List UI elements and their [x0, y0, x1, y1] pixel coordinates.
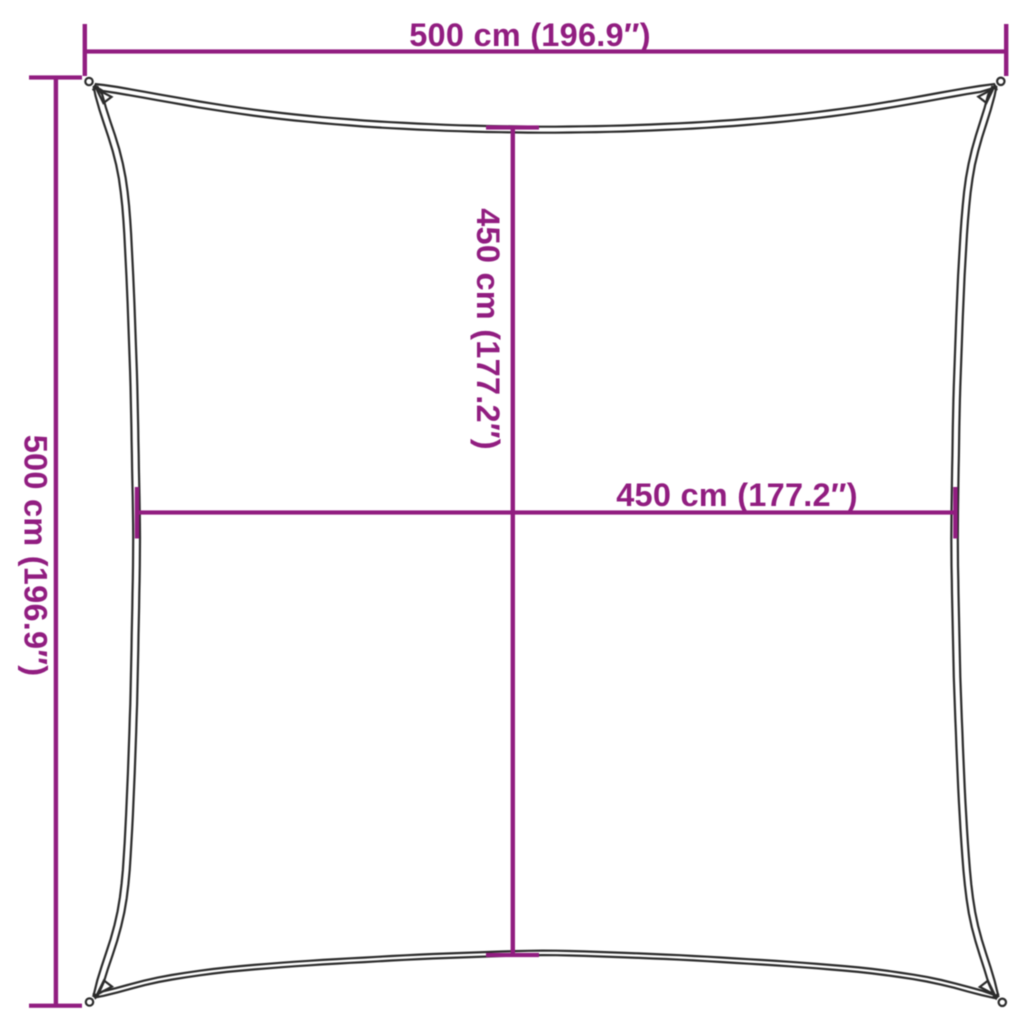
- svg-text:450 cm (177.2″): 450 cm (177.2″): [470, 208, 506, 450]
- svg-text:500 cm (196.9″): 500 cm (196.9″): [409, 17, 651, 53]
- svg-text:450 cm (177.2″): 450 cm (177.2″): [616, 477, 858, 513]
- svg-text:500 cm (196.9″): 500 cm (196.9″): [17, 435, 53, 677]
